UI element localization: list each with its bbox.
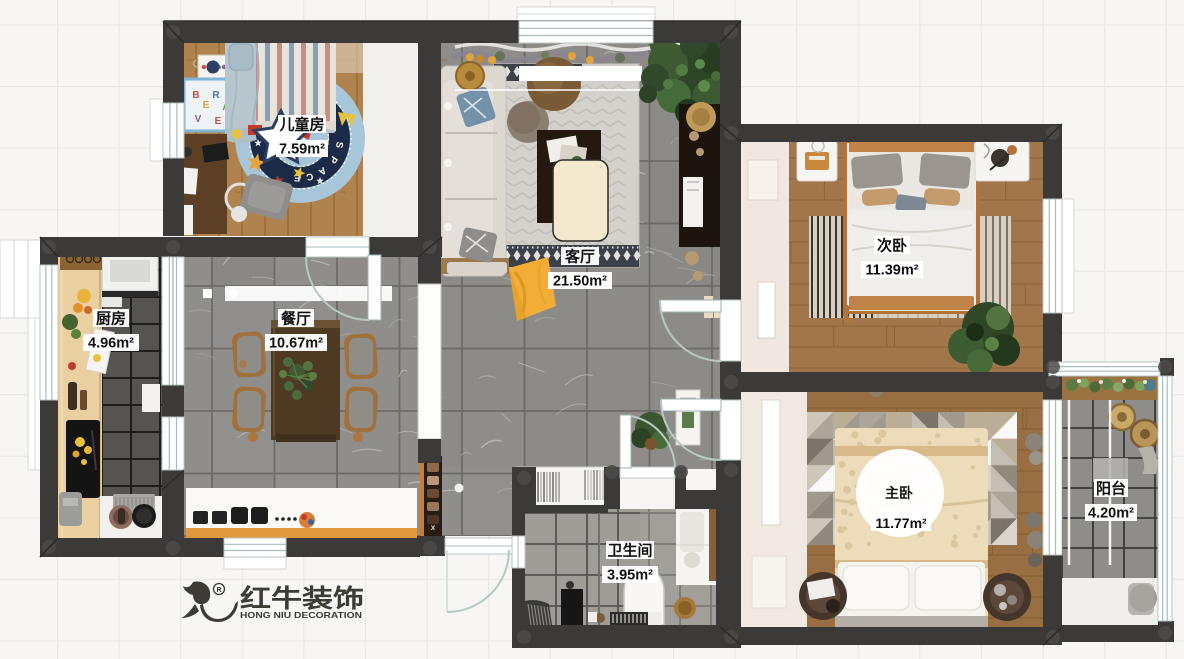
svg-text:HONG NIU DECORATION: HONG NIU DECORATION	[240, 610, 362, 620]
svg-text:10.67m²: 10.67m²	[269, 336, 323, 352]
svg-text:R: R	[212, 90, 220, 101]
svg-text:E: E	[203, 100, 210, 111]
svg-text:R: R	[216, 587, 221, 594]
svg-text:x: x	[431, 523, 436, 532]
svg-text:4.20m²: 4.20m²	[1088, 506, 1134, 522]
svg-text:3.95m²: 3.95m²	[607, 568, 653, 584]
svg-text:11.77m²: 11.77m²	[875, 515, 927, 531]
svg-text:主卧: 主卧	[885, 485, 913, 501]
svg-text:4.96m²: 4.96m²	[88, 336, 134, 352]
svg-text:红牛装饰: 红牛装饰	[240, 584, 364, 613]
svg-text:卫生间: 卫生间	[607, 542, 652, 560]
svg-text:次卧: 次卧	[877, 237, 907, 255]
svg-text:21.50m²: 21.50m²	[553, 274, 607, 290]
svg-text:11.39m²: 11.39m²	[865, 263, 918, 279]
svg-text:B: B	[192, 90, 199, 101]
svg-text:V: V	[195, 114, 202, 125]
svg-text:7.59m²: 7.59m²	[279, 142, 325, 158]
svg-text:E: E	[215, 116, 222, 127]
svg-text:阳台: 阳台	[1096, 480, 1126, 498]
svg-text:厨房: 厨房	[96, 310, 126, 328]
svg-text:儿童房: 儿童房	[278, 116, 324, 134]
svg-text:餐厅: 餐厅	[281, 310, 311, 328]
svg-text:客厅: 客厅	[564, 248, 595, 266]
